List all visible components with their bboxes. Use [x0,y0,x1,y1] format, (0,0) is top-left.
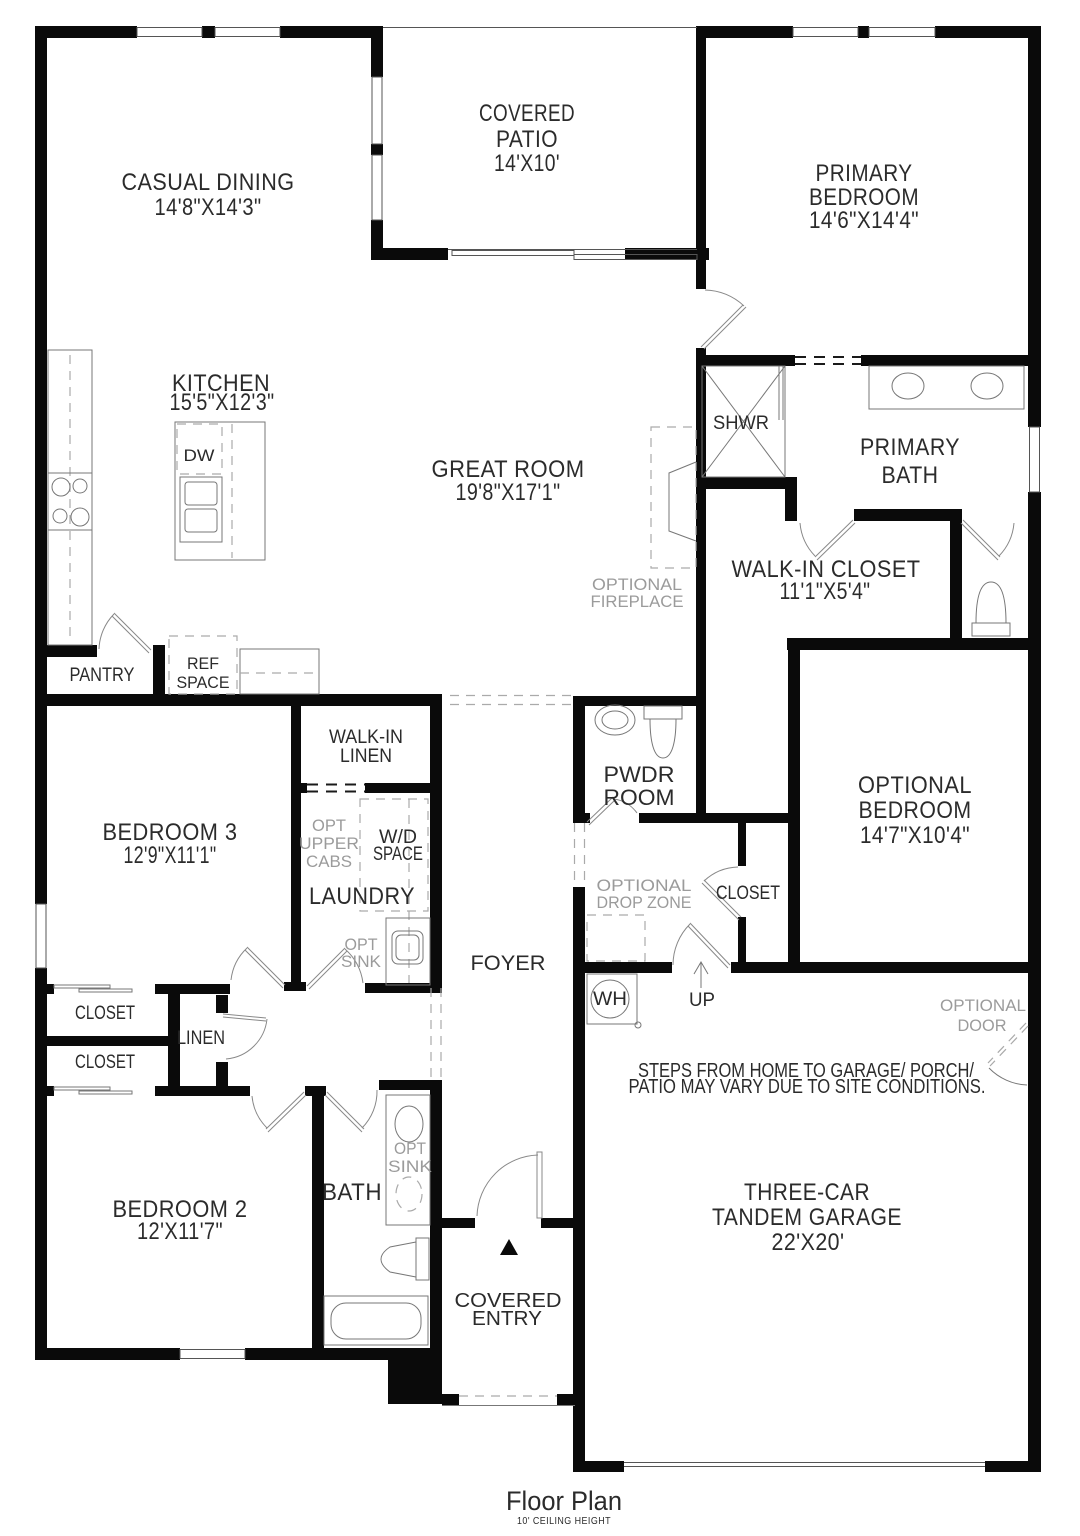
svg-text:OPTIONAL: OPTIONAL [858,772,972,799]
svg-text:14'6"X14'4": 14'6"X14'4" [809,207,919,234]
svg-text:PRIMARY: PRIMARY [860,434,960,461]
svg-text:14'7"X10'4": 14'7"X10'4" [860,822,970,849]
svg-text:BATH: BATH [322,1179,382,1206]
svg-text:SPACE: SPACE [373,844,423,865]
svg-text:LINEN: LINEN [340,746,392,767]
svg-text:DOOR: DOOR [958,1016,1007,1035]
svg-text:SHWR: SHWR [713,413,769,434]
svg-text:WH: WH [593,989,627,1010]
svg-text:PATIO: PATIO [496,126,558,153]
svg-text:15'5"X12'3": 15'5"X12'3" [170,389,275,416]
svg-text:FIREPLACE: FIREPLACE [591,592,684,611]
svg-text:WALK-IN: WALK-IN [329,727,403,748]
svg-text:SINK: SINK [341,952,382,971]
svg-text:10' CEILING HEIGHT: 10' CEILING HEIGHT [517,1516,611,1527]
svg-text:UP: UP [689,990,715,1011]
svg-text:BEDROOM: BEDROOM [859,797,972,824]
svg-text:CLOSET: CLOSET [75,1052,135,1073]
svg-text:12'9"X11'1": 12'9"X11'1" [124,842,217,869]
svg-text:OPT: OPT [312,816,346,835]
svg-text:LINEN: LINEN [177,1028,225,1049]
svg-text:COVERED: COVERED [479,100,575,127]
svg-text:ROOM: ROOM [604,785,675,810]
svg-text:12'X11'7": 12'X11'7" [137,1218,223,1245]
svg-text:22'X20': 22'X20' [772,1229,845,1256]
svg-text:PATIO MAY VARY DUE TO SITE CON: PATIO MAY VARY DUE TO SITE CONDITIONS. [629,1076,986,1098]
svg-text:OPTIONAL: OPTIONAL [940,996,1026,1015]
svg-text:14'8"X14'3": 14'8"X14'3" [155,194,262,221]
svg-text:Floor Plan: Floor Plan [506,1486,622,1516]
svg-text:REF: REF [187,654,219,673]
svg-text:19'8"X17'1": 19'8"X17'1" [456,479,561,506]
svg-text:14'X10': 14'X10' [494,150,560,177]
svg-text:SPACE: SPACE [177,673,230,692]
svg-text:THREE-CAR: THREE-CAR [744,1179,870,1206]
svg-text:CLOSET: CLOSET [716,883,780,904]
svg-text:ENTRY: ENTRY [472,1308,542,1330]
svg-text:OPT: OPT [394,1139,426,1158]
svg-text:11'1"X5'4": 11'1"X5'4" [780,578,871,605]
svg-text:BATH: BATH [882,462,939,489]
svg-text:LAUNDRY: LAUNDRY [309,883,415,910]
svg-text:CABS: CABS [306,852,352,871]
svg-text:UPPER: UPPER [299,834,359,853]
svg-text:PWDR: PWDR [604,762,675,787]
svg-text:SINK: SINK [388,1157,433,1176]
svg-text:PRIMARY: PRIMARY [816,160,913,187]
svg-text:DROP ZONE: DROP ZONE [597,893,692,912]
svg-text:CLOSET: CLOSET [75,1003,135,1024]
svg-text:TANDEM GARAGE: TANDEM GARAGE [712,1204,902,1231]
svg-text:CASUAL DINING: CASUAL DINING [122,169,295,196]
svg-text:DW: DW [184,446,215,465]
svg-text:PANTRY: PANTRY [70,665,135,686]
svg-text:FOYER: FOYER [471,952,546,975]
